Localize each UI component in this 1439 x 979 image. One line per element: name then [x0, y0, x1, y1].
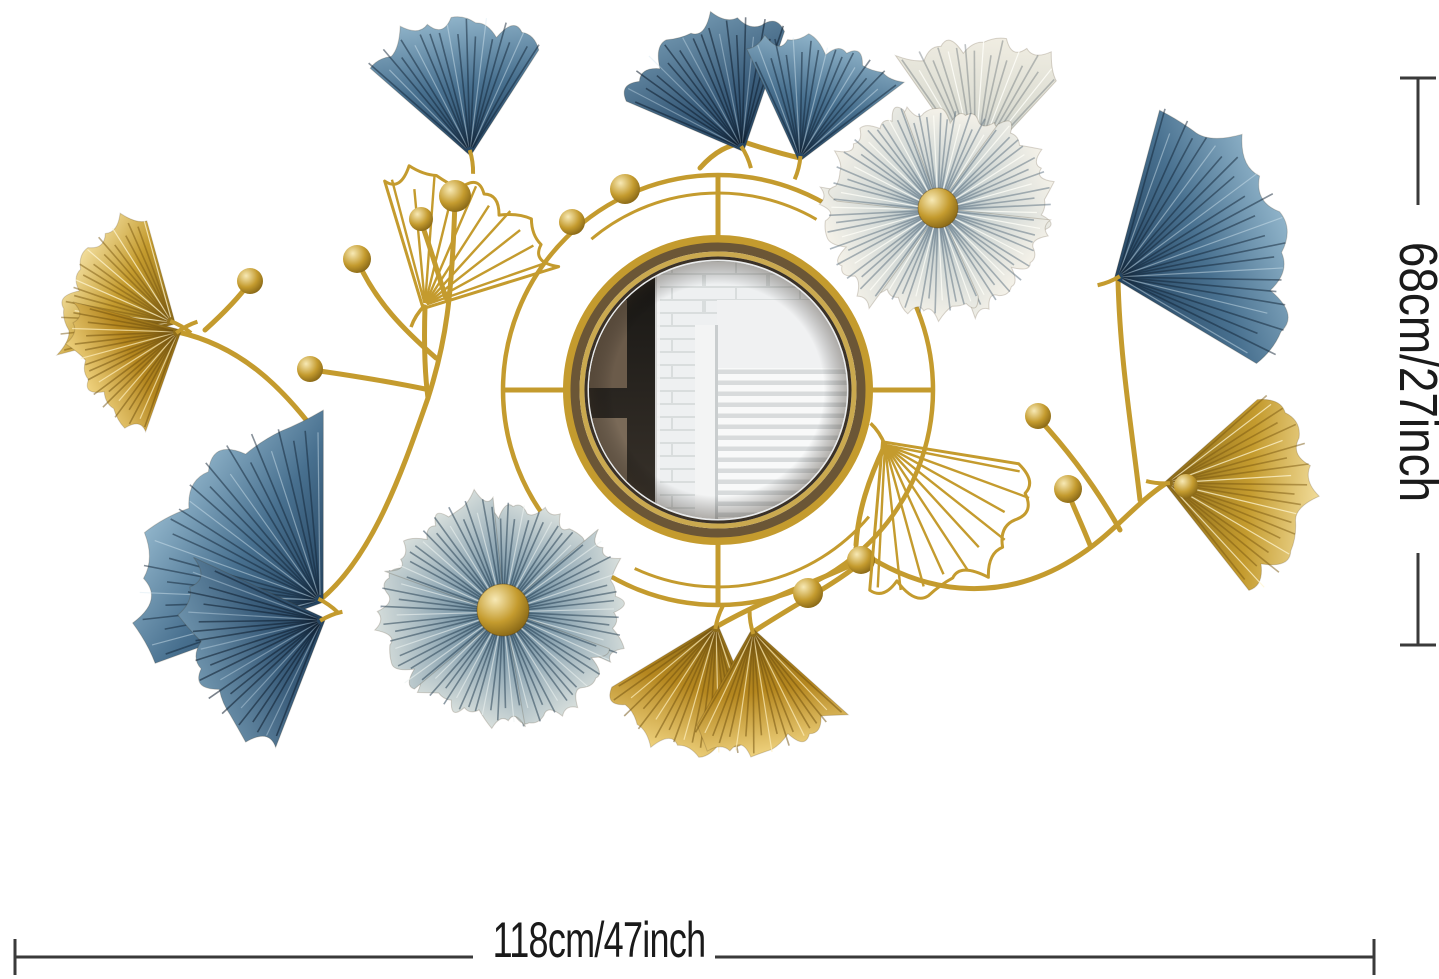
ginkgo-leaf-icon [364, 6, 556, 186]
gold-ball-icon [409, 207, 433, 231]
width-dimension-label: 118cm/47inch [493, 915, 706, 965]
gold-ball-icon [793, 578, 823, 608]
ginkgo-leaf-icon [1045, 82, 1330, 408]
ginkgo-leaf-icon [1137, 386, 1327, 596]
flower-center-ball-icon [477, 584, 529, 636]
gold-ball-icon [343, 245, 371, 273]
product-image: 68cm/27inch 118cm/47inch [0, 0, 1439, 979]
height-dimension-label: 68cm/27inch [1391, 242, 1439, 502]
gold-ball-icon [1174, 474, 1198, 498]
gold-ball-icon [610, 174, 640, 204]
wall-mirror-artwork [0, 0, 1439, 979]
gold-ball-icon [1025, 403, 1051, 429]
metal-flower [807, 92, 1070, 326]
gold-ball-icon [297, 356, 323, 382]
metal-flower [367, 480, 635, 741]
gold-ball-icon [237, 268, 263, 294]
gold-ball-icon [1054, 475, 1082, 503]
gold-ball-icon [559, 209, 585, 235]
gold-ball-icon [439, 180, 471, 212]
flower-center-ball-icon [918, 188, 958, 228]
